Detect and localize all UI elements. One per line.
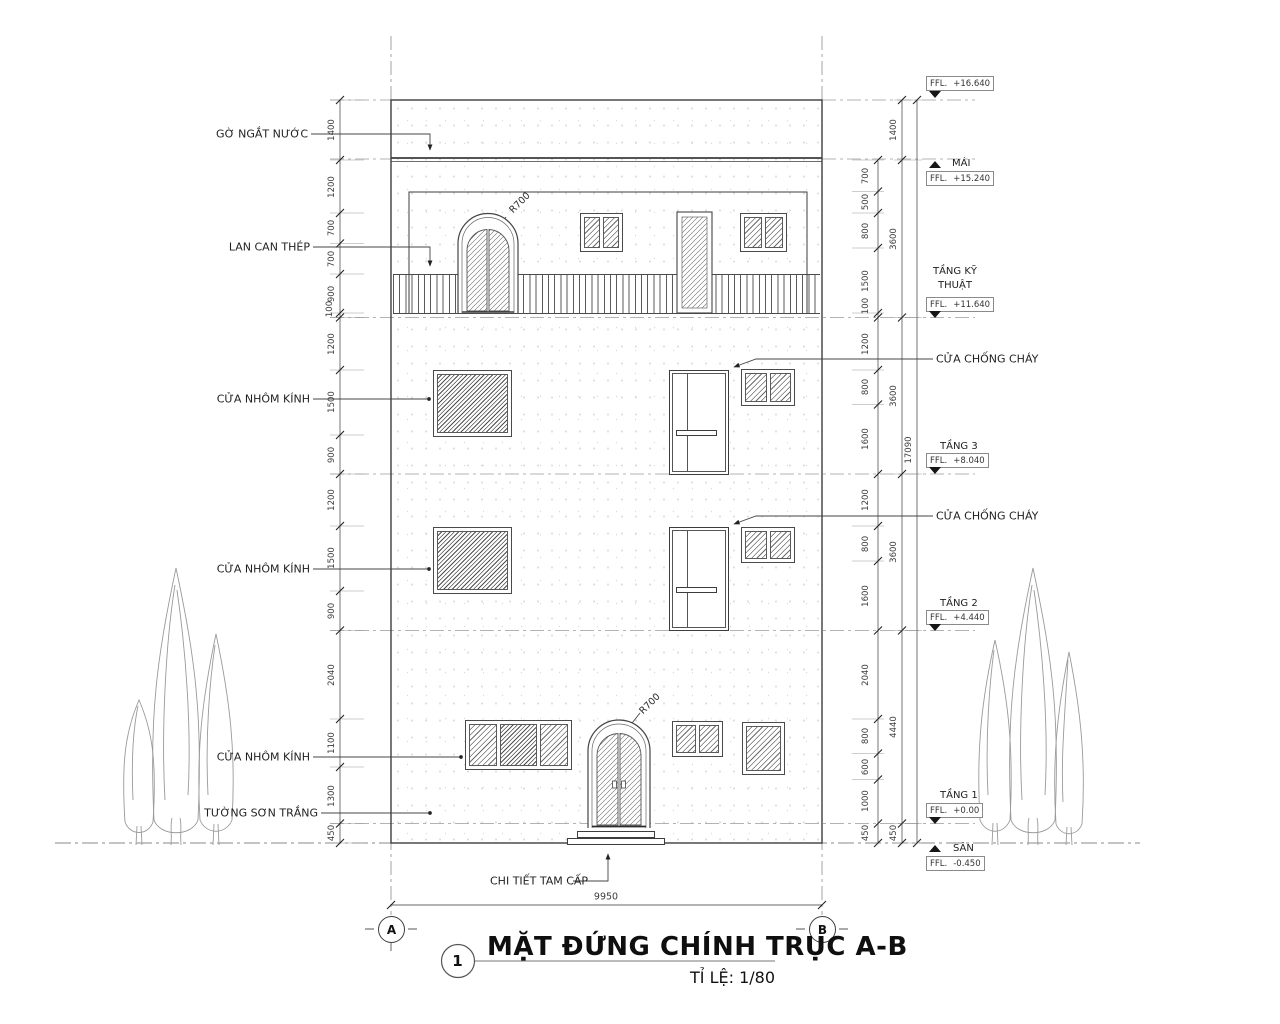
label-aluminum-glass-door-ground: CỬA NHÔM KÍNH [200,751,310,764]
window-pane [765,217,783,248]
label-white-painted-wall: TƯỜNG SƠN TRẮNG [203,807,318,820]
window-ground-triple [465,720,572,770]
dim-right-inner: 800 [861,536,871,552]
ffl-value: +4.440 [953,613,984,623]
door-divider [687,374,688,471]
ffl-value: +0.00 [953,806,979,816]
dim-left: 900 [327,286,337,302]
level-name-floor3: TẦNG 3 [940,441,978,452]
level-name-technical-floor: TẦNG KỸ THUẬT [926,265,984,292]
label-aluminum-glass-door-floor3: CỬA NHÔM KÍNH [200,393,310,406]
trees-left [124,568,234,845]
level-marker-up [929,845,941,852]
ffl-value: +16.640 [953,79,990,89]
dim-right-inner: 800 [861,379,871,395]
window-floor2-small [741,527,795,563]
fire-door-floor2 [669,527,729,631]
push-bar [676,430,717,436]
label-fire-door-floor3: CỬA CHỐNG CHÁY [936,353,1038,366]
window-floor3-large [433,370,512,437]
window-pane [745,531,767,559]
dim-overall-width: 9950 [594,892,618,903]
fire-door-floor3 [669,370,729,475]
dim-right-inner: 700 [861,168,871,184]
elevation-drawing-sheet: GỜ NGẮT NƯỚC LAN CAN THÉP CỬA NHÔM KÍNH … [0,0,1280,1024]
dim-left: 900 [327,603,337,619]
detail-number: 1 [441,944,474,977]
ffl-prefix: FFL. [930,174,947,184]
dim-left: 1300 [327,785,337,807]
dim-right-outer: 3600 [889,228,899,250]
ffl-prefix: FFL. [930,300,947,310]
ffl-prefix: FFL. [930,613,947,623]
dim-right-inner: 800 [861,223,871,239]
label-fire-door-floor2: CỬA CHỐNG CHÁY [936,510,1038,523]
window-pane [437,531,508,590]
ffl-prefix: FFL. [930,79,947,89]
dim-left: 2040 [327,664,337,686]
window-roof-right [740,213,787,252]
window-pane [437,374,508,433]
ffl-value: +15.240 [953,174,990,184]
dim-left: 1100 [327,732,337,754]
dim-right-outer: 450 [889,825,899,841]
level-marker-down [929,624,941,631]
label-entry-steps-detail: CHI TIẾT TAM CẤP [490,875,588,888]
ffl-value: +8.040 [953,456,984,466]
window-pane [500,724,536,766]
trees-right [979,568,1084,845]
level-marker-down [929,311,941,318]
dim-left: 450 [327,825,337,841]
label-drip-edge: GỜ NGẮT NƯỚC [198,128,308,141]
push-bar [676,587,717,593]
entry-step-upper [577,831,655,838]
ffl-prefix: FFL. [930,806,947,816]
window-pane [770,373,792,402]
ffl-tag-floor3: FFL.+8.040 [926,453,989,468]
dim-right-inner: 450 [861,825,871,841]
dim-right-inner: 500 [861,194,871,210]
dim-left: 1400 [327,119,337,141]
grid-letter: A [387,923,396,937]
dim-right-inner: 100 [861,298,871,314]
dim-right-outer: 3600 [889,541,899,563]
dim-right-inner: 1200 [861,489,871,511]
level-marker-down [929,817,941,824]
dim-left: 100 [325,301,335,317]
door-frame [672,373,726,472]
arched-door-roof [458,214,518,314]
dim-left: 1500 [327,547,337,569]
window-pane [745,373,767,402]
window-pane [699,725,719,753]
arched-entrance-door [588,720,650,828]
window-roof-left [580,213,623,252]
drawing-linework [0,0,1280,1024]
dim-right-inner: 1600 [861,585,871,607]
dim-left: 700 [327,220,337,236]
ffl-tag-floor1: FFL.+0.00 [926,803,983,818]
window-pane [469,724,497,766]
dim-right-outer: 4440 [889,716,899,738]
dim-left: 1200 [327,489,337,511]
window-pane [603,217,619,248]
ffl-prefix: FFL. [930,859,947,869]
window-pane [744,217,762,248]
ffl-tag-floor2: FFL.+4.440 [926,610,989,625]
window-floor2-large [433,527,512,594]
dim-right-inner: 1600 [861,428,871,450]
dim-left: 900 [327,447,337,463]
dim-right-inner: 1000 [861,790,871,812]
drawing-scale: TỈ LỆ: 1/80 [690,968,775,987]
dim-right-inner: 800 [861,728,871,744]
window-pane [540,724,568,766]
window-pane [746,726,781,771]
label-aluminum-glass-door-floor2: CỬA NHÔM KÍNH [200,563,310,576]
window-ground-single [742,722,785,775]
entry-step-lower [567,838,665,845]
ffl-prefix: FFL. [930,456,947,466]
window-pane [770,531,792,559]
narrow-door-roof [677,212,712,313]
level-name-floor2: TẦNG 2 [940,598,978,609]
dim-right-inner: 600 [861,759,871,775]
level-marker-up [929,161,941,168]
ffl-value: +11.640 [953,300,990,310]
level-marker-down [929,467,941,474]
dim-right-inner: 2040 [861,664,871,686]
label-steel-railing: LAN CAN THÉP [200,241,310,254]
level-name-yard: SÂN [953,843,974,854]
dim-overall-height: 17090 [904,436,914,463]
window-pane [584,217,600,248]
dim-right-outer: 1400 [889,119,899,141]
dim-left: 1200 [327,176,337,198]
dim-right-inner: 1500 [861,270,871,292]
ffl-tag-yard: FFL.-0.450 [926,856,985,871]
dim-left: 1500 [327,391,337,413]
dim-left: 700 [327,251,337,267]
window-floor3-small [741,369,795,406]
dim-left: 1200 [327,333,337,355]
window-pane [676,725,696,753]
level-name-floor1: TẦNG 1 [940,790,978,801]
detail-number-text: 1 [452,952,462,970]
dim-right-outer: 3600 [889,385,899,407]
level-marker-down [929,91,941,98]
door-divider [687,531,688,627]
ffl-value: -0.450 [953,859,980,869]
ffl-tag-roof: FFL.+15.240 [926,171,994,186]
grid-bubble-a: A [378,916,405,943]
ffl-tag-technical-floor: FFL.+11.640 [926,297,994,312]
door-frame [672,530,726,628]
window-ground-double [672,721,723,757]
ffl-tag-parapet: FFL.+16.640 [926,76,994,91]
dim-right-inner: 1200 [861,333,871,355]
level-name-roof: MÁI [952,158,970,169]
drawing-title: MẶT ĐỨNG CHÍNH TRỤC A-B [487,932,908,962]
